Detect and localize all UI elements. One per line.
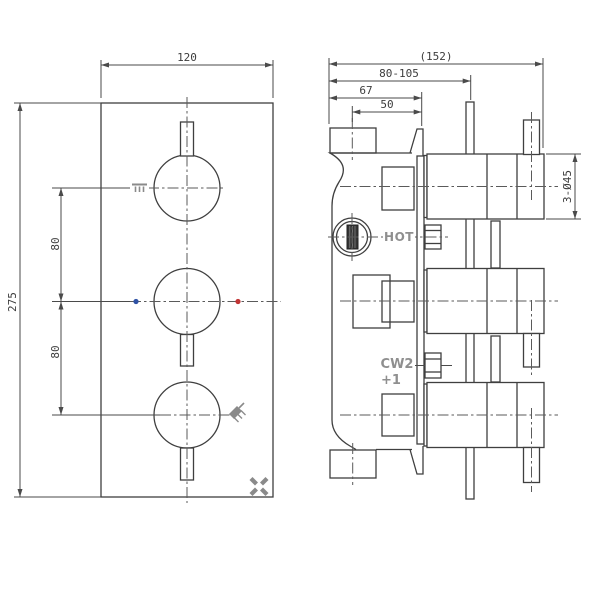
front-centerlines [52, 97, 281, 503]
flange-bottom-tab [410, 446, 423, 474]
cw2-label-line2: +1 [381, 373, 401, 388]
front-dimensions [14, 60, 273, 497]
dim-port-depth-label: 50 [380, 98, 393, 111]
union-nut-lower [413, 353, 452, 378]
shower-head-icon [229, 403, 246, 422]
crosswater-x-logo [251, 479, 267, 495]
flange-strip [417, 156, 424, 444]
cold-indicator-dot [133, 299, 138, 304]
side-knob-top [424, 120, 544, 219]
dim-handle-diameter-label: 3-Ø45 [561, 170, 574, 203]
dim-overall-label: (152) [419, 50, 452, 63]
plate-sleeve-lower [491, 336, 500, 382]
dim-height-label: 275 [6, 292, 19, 312]
flange-top-tab [410, 129, 423, 156]
drawing-svg: 120 275 80 80 (152) 80-105 67 50 3-Ø45 H… [0, 0, 600, 600]
plate-sleeve-upper [491, 221, 500, 268]
bath-spout-icon [130, 181, 149, 194]
dim-depth-range-label: 80-105 [379, 67, 419, 80]
dim-pitch-lower-label: 80 [49, 345, 62, 358]
side-top-port [330, 128, 376, 153]
hot-indicator-dot [235, 299, 240, 304]
cartridge-top [382, 167, 414, 210]
dim-pitch-upper-label: 80 [49, 237, 62, 250]
dim-width-label: 120 [177, 51, 197, 64]
side-knob-bottom [424, 383, 544, 483]
hot-label: HOT [384, 230, 414, 244]
technical-drawing: 120 275 80 80 (152) 80-105 67 50 3-Ø45 H… [0, 0, 600, 600]
cw2-label: CW2 [381, 357, 414, 372]
dim-body-depth-label: 67 [359, 84, 372, 97]
side-knob-middle [424, 269, 544, 368]
